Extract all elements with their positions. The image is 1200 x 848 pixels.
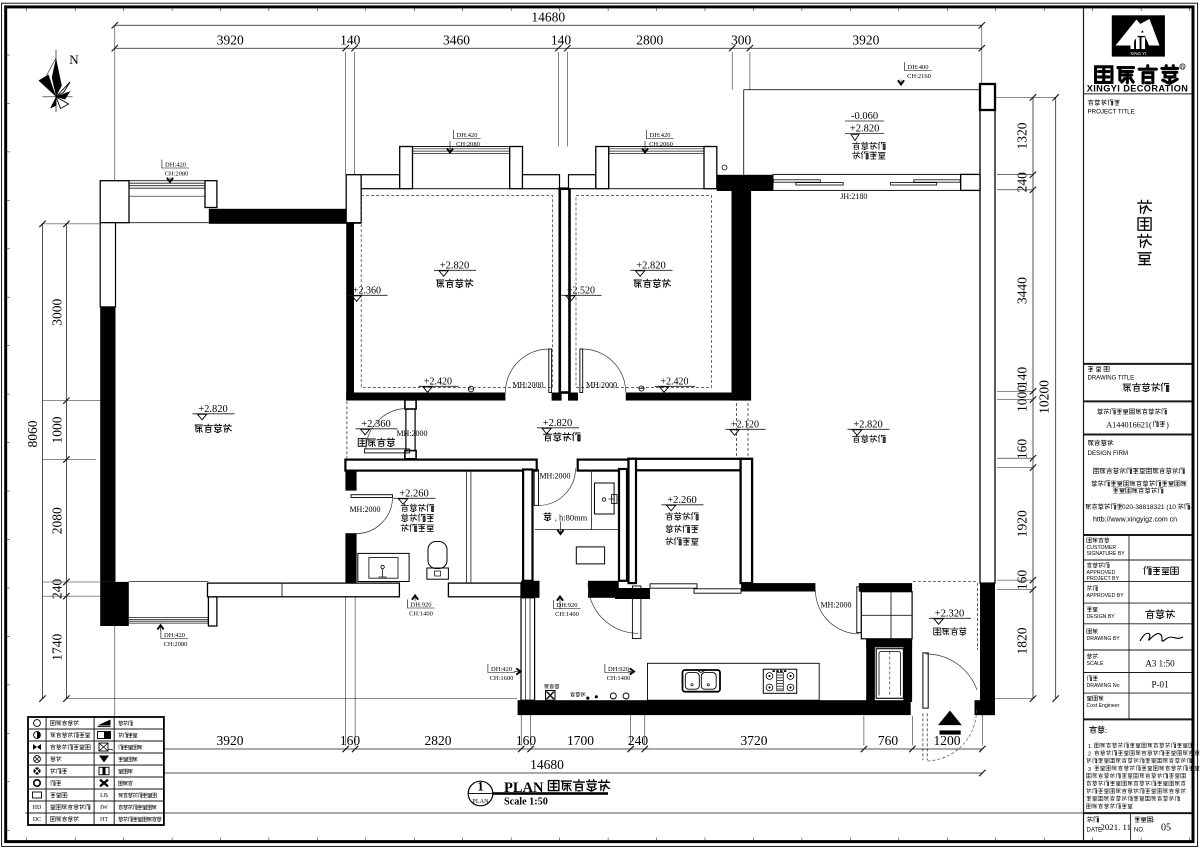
svg-text:+2.360: +2.360 — [353, 286, 381, 297]
svg-text:14680: 14680 — [531, 10, 565, 25]
svg-text:DC: DC — [33, 817, 41, 823]
svg-text:DH:420: DH:420 — [650, 132, 671, 139]
svg-text:1820: 1820 — [1015, 627, 1030, 654]
svg-text:3920: 3920 — [217, 733, 244, 748]
svg-text:+2.420: +2.420 — [424, 377, 452, 388]
svg-text:1320: 1320 — [1015, 122, 1030, 149]
svg-text:3000: 3000 — [50, 298, 65, 325]
svg-text:CH:1400: CH:1400 — [555, 611, 579, 618]
svg-text:MH:2000: MH:2000 — [586, 381, 617, 390]
svg-text:+2.420: +2.420 — [660, 377, 688, 388]
svg-text:020-38818321 (10: 020-38818321 (10 — [1122, 504, 1176, 511]
svg-text:): ) — [1166, 421, 1169, 430]
svg-text:DRAWING No: DRAWING No — [1087, 683, 1120, 689]
svg-text:3720: 3720 — [741, 733, 768, 748]
svg-text:1.: 1. — [1088, 744, 1093, 750]
svg-text:SCALE: SCALE — [1087, 661, 1105, 667]
svg-text:1000: 1000 — [1015, 385, 1030, 412]
svg-text:XING YI: XING YI — [1130, 51, 1146, 56]
svg-text:MH:2000: MH:2000 — [539, 472, 570, 481]
svg-text:2800: 2800 — [636, 32, 663, 47]
svg-text:DESIGN BY: DESIGN BY — [1087, 614, 1116, 620]
svg-text:+2.520: +2.520 — [567, 286, 595, 297]
svg-text:160: 160 — [516, 733, 537, 748]
svg-text:DH:420: DH:420 — [457, 132, 478, 139]
svg-text:DH:420: DH:420 — [164, 632, 185, 639]
svg-text:HT: HT — [100, 817, 108, 823]
svg-text:MH:2000: MH:2000 — [349, 505, 380, 514]
svg-text:1920: 1920 — [1015, 510, 1030, 537]
svg-text:DH:920: DH:920 — [411, 602, 432, 609]
svg-text:140: 140 — [340, 32, 361, 47]
svg-text:140: 140 — [1015, 367, 1030, 388]
svg-text:CH:1400: CH:1400 — [409, 610, 433, 617]
svg-text:1000: 1000 — [50, 416, 65, 443]
svg-text:NO.: NO. — [1134, 828, 1145, 834]
svg-text:CH:2080: CH:2080 — [164, 641, 188, 648]
svg-text:APPROVED BY: APPROVED BY — [1087, 593, 1125, 599]
svg-text:, h:80mm: , h:80mm — [555, 513, 588, 523]
svg-text:MH:2000: MH:2000 — [512, 381, 543, 390]
svg-text:+2.360: +2.360 — [361, 419, 391, 430]
svg-text:3440: 3440 — [1015, 277, 1030, 304]
svg-text:Cost Engineer: Cost Engineer — [1087, 703, 1120, 709]
svg-text:LB: LB — [100, 793, 108, 799]
svg-text:+2.320: +2.320 — [935, 609, 965, 620]
svg-text:DH:920: DH:920 — [557, 602, 578, 609]
svg-text:+2.120: +2.120 — [731, 420, 759, 431]
svg-text:JH:2180: JH:2180 — [840, 192, 867, 201]
svg-text:+2.820: +2.820 — [543, 418, 573, 429]
svg-text:+2.820: +2.820 — [440, 261, 470, 272]
svg-text:+2.820: +2.820 — [853, 420, 883, 431]
svg-text:CH:2160: CH:2160 — [907, 73, 931, 80]
svg-text:PLAN: PLAN — [472, 798, 489, 805]
svg-text:160: 160 — [1015, 439, 1030, 460]
svg-text:): ) — [1188, 504, 1190, 511]
svg-text::: : — [1153, 817, 1155, 824]
svg-text:760: 760 — [878, 733, 899, 748]
svg-text:10200: 10200 — [1037, 380, 1052, 414]
svg-text:160: 160 — [340, 733, 361, 748]
svg-text:1200: 1200 — [934, 733, 961, 748]
svg-text:2080: 2080 — [50, 507, 65, 534]
svg-text:300: 300 — [731, 32, 752, 47]
svg-text:PROJECT BY: PROJECT BY — [1087, 576, 1120, 582]
svg-text:3: 3 — [1088, 767, 1091, 773]
svg-text:+2.260: +2.260 — [399, 489, 429, 500]
svg-text:CH:1600: CH:1600 — [490, 675, 514, 682]
svg-text:MH:2000: MH:2000 — [396, 429, 427, 438]
svg-text:CH:2060: CH:2060 — [649, 141, 673, 148]
svg-text:14680: 14680 — [530, 757, 564, 772]
svg-text:IW: IW — [100, 805, 108, 811]
svg-text:140: 140 — [551, 32, 572, 47]
svg-text:DRAWING TITLE: DRAWING TITLE — [1088, 376, 1135, 382]
svg-text:+2.820: +2.820 — [636, 261, 666, 272]
svg-text:SIGNATURE BY: SIGNATURE BY — [1087, 551, 1126, 557]
svg-text:1740: 1740 — [50, 634, 65, 661]
svg-text:A144016621(: A144016621( — [1106, 421, 1152, 430]
svg-text:DRAWING BY: DRAWING BY — [1087, 636, 1121, 642]
svg-text:CH:1400: CH:1400 — [607, 675, 631, 682]
svg-text:HD: HD — [33, 805, 42, 811]
svg-text:CH:2080: CH:2080 — [456, 141, 480, 148]
svg-text:3920: 3920 — [217, 32, 244, 47]
svg-text:N: N — [69, 52, 79, 67]
svg-text:DESIGN FIRM: DESIGN FIRM — [1088, 450, 1129, 457]
svg-text:1: 1 — [477, 779, 484, 794]
svg-text:3460: 3460 — [443, 32, 470, 47]
svg-text:+2.260: +2.260 — [667, 495, 697, 506]
svg-text:+2.820: +2.820 — [198, 404, 228, 415]
svg-text:05: 05 — [1161, 823, 1171, 834]
svg-text::: : — [1105, 726, 1107, 735]
svg-text:3920: 3920 — [852, 32, 879, 47]
svg-text:2021. 11: 2021. 11 — [1101, 822, 1131, 832]
svg-text:DH:420: DH:420 — [165, 162, 186, 169]
svg-text:2: 2 — [1088, 752, 1091, 758]
svg-text:httb://www.xingyigz.com cn: httb://www.xingyigz.com cn — [1093, 517, 1177, 524]
svg-text:1700: 1700 — [567, 733, 594, 748]
svg-text:Scale 1:50: Scale 1:50 — [504, 797, 548, 808]
svg-text:A3 1:50: A3 1:50 — [1145, 659, 1175, 669]
svg-text:-0.060: -0.060 — [851, 111, 878, 122]
svg-text:MH:2000: MH:2000 — [820, 601, 851, 610]
svg-text:2820: 2820 — [425, 733, 452, 748]
svg-text:DH:400: DH:400 — [908, 64, 929, 71]
svg-text:8060: 8060 — [25, 420, 40, 447]
svg-text:P-01: P-01 — [1151, 680, 1168, 690]
svg-text:CH:2080: CH:2080 — [165, 170, 189, 177]
svg-text:DH:420: DH:420 — [491, 666, 512, 673]
svg-text:XINGYI DECORATION: XINGYI DECORATION — [1087, 84, 1189, 94]
svg-text:+2.820: +2.820 — [850, 124, 880, 135]
svg-text:DH:920: DH:920 — [608, 666, 629, 673]
svg-text:PLAN: PLAN — [504, 780, 544, 796]
svg-text:PROJECT TITLE: PROJECT TITLE — [1088, 109, 1135, 116]
